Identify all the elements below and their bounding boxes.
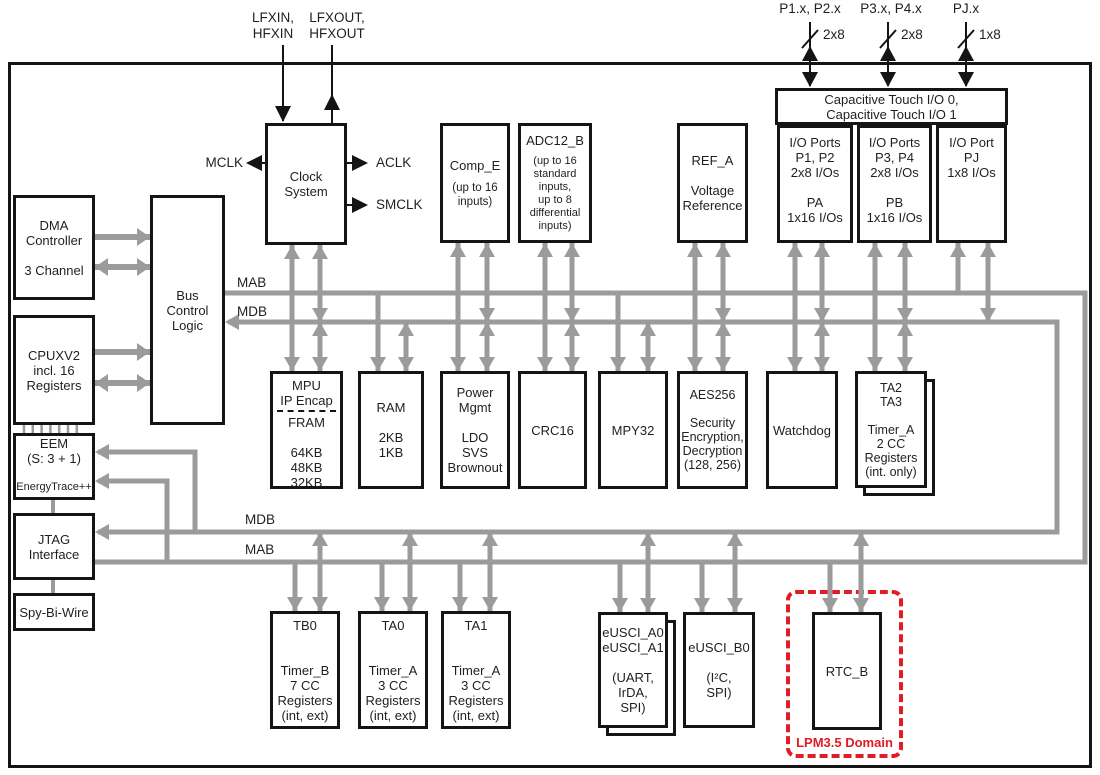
block-io-ports-p1-p2: I/O Ports P1, P2 2x8 I/Os PA 1x16 I/Os bbox=[777, 125, 853, 243]
io34-label: I/O Ports P3, P4 2x8 I/Os PB 1x16 I/Os bbox=[867, 135, 923, 225]
iopj-label: I/O Port PJ 1x8 I/Os bbox=[947, 135, 995, 180]
block-cpuxv2: CPUXV2 incl. 16 Registers bbox=[13, 315, 95, 425]
block-watchdog: Watchdog bbox=[766, 371, 838, 489]
block-jtag-interface: JTAG Interface bbox=[13, 513, 95, 580]
block-timer-ta1: TA1 Timer_A 3 CC Registers (int, ext) bbox=[441, 611, 511, 729]
tb0-label: TB0 Timer_B 7 CC Registers (int, ext) bbox=[278, 618, 333, 723]
bus-label-mab-upper: MAB bbox=[237, 275, 266, 291]
block-mpy32: MPY32 bbox=[598, 371, 668, 489]
block-capacitive-touch-io: Capacitive Touch I/O 0, Capacitive Touch… bbox=[775, 88, 1008, 125]
block-io-ports-p3-p4: I/O Ports P3, P4 2x8 I/Os PB 1x16 I/Os bbox=[857, 125, 932, 243]
aes-label: AES256 Security Encryption, Decryption (… bbox=[681, 388, 744, 472]
eusci-a-label: eUSCI_A0 eUSCI_A1 (UART, IrDA, SPI) bbox=[602, 625, 663, 715]
crc-label: CRC16 bbox=[531, 423, 574, 438]
ram-label: RAM 2KB 1KB bbox=[377, 400, 406, 460]
sbw-label: Spy-Bi-Wire bbox=[19, 605, 88, 620]
block-dma-controller: DMA Controller 3 Channel bbox=[13, 195, 95, 300]
adc-sub: (up to 16 standard inputs, up to 8 diffe… bbox=[530, 155, 581, 233]
block-power-mgmt: Power Mgmt LDO SVS Brownout bbox=[440, 371, 510, 489]
bus-control-label: Bus Control Logic bbox=[167, 288, 209, 333]
block-eusci-a0-a1: eUSCI_A0 eUSCI_A1 (UART, IrDA, SPI) bbox=[598, 612, 668, 728]
eem-label: EEM (S: 3 + 1) bbox=[27, 436, 81, 481]
dma-label: DMA Controller 3 Channel bbox=[24, 218, 83, 278]
pmm-label: Power Mgmt LDO SVS Brownout bbox=[448, 385, 503, 475]
eusci-b-label: eUSCI_B0 (I²C, SPI) bbox=[688, 640, 749, 700]
block-bus-control-logic: Bus Control Logic bbox=[150, 195, 225, 425]
ref-label: REF_A Voltage Reference bbox=[683, 153, 743, 213]
block-mpu-fram: MPU IP Encap FRAM 64KB 48KB 32KB bbox=[270, 371, 343, 489]
block-eem: EEM (S: 3 + 1) EnergyTrace++ bbox=[13, 433, 95, 500]
block-timer-ta2-ta3: TA2 TA3 Timer_A 2 CC Registers (int. onl… bbox=[855, 371, 927, 488]
block-adc12-b: ADC12_B (up to 16 standard inputs, up to… bbox=[518, 123, 592, 243]
wdt-label: Watchdog bbox=[773, 423, 831, 438]
ta0-label: TA0 Timer_A 3 CC Registers (int, ext) bbox=[366, 618, 421, 723]
io12-label: I/O Ports P1, P2 2x8 I/Os PA 1x16 I/Os bbox=[787, 135, 843, 225]
signal-label-mclk: MCLK bbox=[193, 155, 243, 171]
captouch-label: Capacitive Touch I/O 0, Capacitive Touch… bbox=[824, 92, 958, 122]
block-rtc-b: RTC_B bbox=[812, 612, 882, 730]
signal-label-aclk: ACLK bbox=[376, 155, 411, 171]
bus-label-mab-lower: MAB bbox=[245, 542, 274, 558]
block-timer-ta0: TA0 Timer_A 3 CC Registers (int, ext) bbox=[358, 611, 428, 729]
block-clock-system: Clock System bbox=[265, 123, 347, 245]
adc-title: ADC12_B bbox=[526, 133, 584, 148]
bus-label-mdb-lower: MDB bbox=[245, 512, 275, 528]
energytrace-label: EnergyTrace++ bbox=[16, 481, 91, 494]
block-timer-tb0: TB0 Timer_B 7 CC Registers (int, ext) bbox=[270, 611, 340, 729]
comp-sub: (up to 16 inputs) bbox=[452, 181, 497, 209]
ta1-label: TA1 Timer_A 3 CC Registers (int, ext) bbox=[449, 618, 504, 723]
block-spy-bi-wire: Spy-Bi-Wire bbox=[13, 593, 95, 631]
block-ram: RAM 2KB 1KB bbox=[358, 371, 424, 489]
block-aes256: AES256 Security Encryption, Decryption (… bbox=[677, 371, 748, 489]
cpu-label: CPUXV2 incl. 16 Registers bbox=[27, 348, 82, 393]
block-eusci-b0: eUSCI_B0 (I²C, SPI) bbox=[683, 612, 755, 728]
ta23-label: TA2 TA3 Timer_A 2 CC Registers (int. onl… bbox=[865, 381, 918, 479]
block-io-port-pj: I/O Port PJ 1x8 I/Os bbox=[936, 125, 1007, 243]
block-crc16: CRC16 bbox=[518, 371, 587, 489]
mpy-label: MPY32 bbox=[612, 423, 655, 438]
signal-label-smclk: SMCLK bbox=[376, 197, 423, 213]
block-ref-a: REF_A Voltage Reference bbox=[677, 123, 748, 243]
comp-title: Comp_E bbox=[450, 158, 501, 173]
mpu-label: MPU IP Encap bbox=[280, 378, 333, 408]
clock-label: Clock System bbox=[284, 169, 327, 199]
mpu-fram-divider bbox=[277, 410, 336, 412]
jtag-label: JTAG Interface bbox=[29, 532, 80, 562]
block-diagram: LFXIN, HFXIN LFXOUT, HFXOUT P1.x, P2.x P… bbox=[0, 0, 1100, 775]
bus-label-mdb-upper: MDB bbox=[237, 304, 267, 320]
fram-label: FRAM 64KB 48KB 32KB bbox=[288, 415, 325, 490]
rtc-label: RTC_B bbox=[826, 664, 868, 679]
block-comp-e: Comp_E (up to 16 inputs) bbox=[440, 123, 510, 243]
